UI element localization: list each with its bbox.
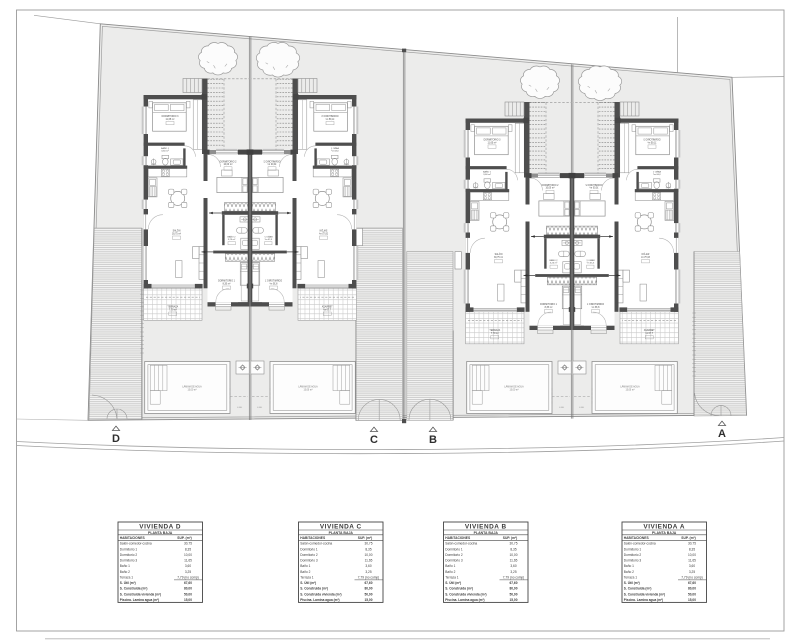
svg-text:Piscina. Lamina agua (m²): Piscina. Lamina agua (m²) [445, 598, 484, 602]
svg-text:15,00: 15,00 [510, 598, 518, 602]
svg-text:Terraza 1: Terraza 1 [120, 575, 134, 579]
svg-text:PLANTA BAJA: PLANTA BAJA [474, 531, 499, 535]
svg-text:80,00: 80,00 [365, 587, 373, 591]
svg-text:S. Construida (m²): S. Construida (m²) [300, 587, 328, 591]
svg-text:Dormitorio 2: Dormitorio 2 [300, 553, 318, 557]
svg-text:30,75: 30,75 [184, 542, 192, 546]
svg-text:67,60: 67,60 [688, 581, 696, 585]
svg-text:50,00: 50,00 [365, 592, 373, 596]
svg-text:HABITACIONES: HABITACIONES [120, 536, 146, 540]
svg-text:30,75: 30,75 [688, 542, 696, 546]
svg-text:S. Construida vivienda (m²): S. Construida vivienda (m²) [445, 592, 486, 596]
svg-text:80,00: 80,00 [688, 587, 696, 591]
svg-text:Baño 2: Baño 2 [624, 570, 634, 574]
svg-text:PLANTA BAJA: PLANTA BAJA [329, 531, 354, 535]
svg-text:3,60: 3,60 [689, 564, 695, 568]
svg-text:S. Útil (m²): S. Útil (m²) [300, 580, 316, 585]
svg-text:3,60: 3,60 [185, 564, 191, 568]
svg-text:BAÑO 1: BAÑO 1 [161, 147, 170, 150]
svg-text:67,60: 67,60 [365, 581, 373, 585]
svg-text:3,60: 3,60 [365, 564, 371, 568]
svg-text:Dormitorio 3: Dormitorio 3 [120, 559, 138, 563]
svg-text:3,25: 3,25 [510, 570, 516, 574]
svg-text:SUP. (m²): SUP. (m²) [358, 536, 372, 540]
svg-text:10,00: 10,00 [688, 553, 696, 557]
svg-text:Salón-comedor-cocina: Salón-comedor-cocina [624, 542, 656, 546]
svg-text:Baño 2: Baño 2 [445, 570, 455, 574]
svg-text:Dormitorio 3: Dormitorio 3 [300, 559, 318, 563]
svg-text:10,00: 10,00 [184, 553, 192, 557]
svg-text:Dormitorio 1: Dormitorio 1 [624, 547, 642, 551]
svg-text:Salón-comedor-cocina: Salón-comedor-cocina [445, 542, 477, 546]
svg-text:S. Construida vivienda (m²): S. Construida vivienda (m²) [624, 592, 665, 596]
svg-text:VIVIENDA C: VIVIENDA C [320, 523, 362, 530]
svg-text:Dormitorio 1: Dormitorio 1 [445, 547, 463, 551]
svg-text:D: D [112, 433, 120, 445]
svg-text:Dormitorio 1: Dormitorio 1 [120, 547, 138, 551]
svg-text:8,35: 8,35 [365, 547, 371, 551]
svg-text:Piscina. Lamina agua (m²): Piscina. Lamina agua (m²) [120, 598, 159, 602]
svg-text:VIVIENDA B: VIVIENDA B [465, 523, 507, 530]
svg-text:3,25: 3,25 [689, 570, 695, 574]
svg-text:30,75: 30,75 [510, 542, 518, 546]
svg-text:11,65: 11,65 [510, 559, 518, 563]
svg-text:TERRAZA: TERRAZA [167, 306, 178, 309]
svg-text:Dormitorio 2: Dormitorio 2 [120, 553, 138, 557]
svg-text:HABITACIONES: HABITACIONES [445, 536, 471, 540]
svg-text:Terraza 1: Terraza 1 [624, 575, 638, 579]
svg-text:S. Útil (m²): S. Útil (m²) [445, 580, 461, 585]
svg-text:7,79 (no comp): 7,79 (no comp) [358, 575, 379, 579]
svg-text:10,00 m²: 10,00 m² [223, 163, 232, 166]
svg-text:S. Construida vivienda (m²): S. Construida vivienda (m²) [120, 592, 161, 596]
svg-text:11,65: 11,65 [688, 559, 696, 563]
svg-text:3,60: 3,60 [510, 564, 516, 568]
svg-text:S. Construida vivienda (m²): S. Construida vivienda (m²) [300, 592, 341, 596]
svg-text:15,00: 15,00 [365, 598, 373, 602]
svg-text:Baño 1: Baño 1 [445, 564, 455, 568]
svg-text:Salón-comedor-cocina: Salón-comedor-cocina [120, 542, 152, 546]
svg-text:30,75: 30,75 [365, 542, 373, 546]
svg-text:Baño 1: Baño 1 [300, 564, 310, 568]
svg-text:HABITACIONES: HABITACIONES [624, 536, 650, 540]
svg-text:10,00: 10,00 [510, 553, 518, 557]
svg-text:DORMITORIO 1: DORMITORIO 1 [218, 281, 236, 283]
svg-text:SUP. (m²): SUP. (m²) [503, 536, 517, 540]
svg-text:C: C [370, 434, 378, 446]
svg-text:Terraza 1: Terraza 1 [445, 575, 459, 579]
svg-text:PLANTA BAJA: PLANTA BAJA [652, 531, 677, 535]
svg-text:S. Útil (m²): S. Útil (m²) [120, 580, 136, 585]
svg-text:HABITACIONES: HABITACIONES [300, 536, 326, 540]
svg-text:S. Construida (m²): S. Construida (m²) [624, 587, 652, 591]
svg-text:Baño 2: Baño 2 [120, 570, 130, 574]
svg-text:7,79 (no comp): 7,79 (no comp) [177, 575, 198, 579]
svg-text:VIVIENDA A: VIVIENDA A [643, 523, 685, 530]
svg-text:A: A [718, 428, 726, 440]
svg-text:S. Construida (m²): S. Construida (m²) [445, 587, 473, 591]
svg-text:SALÓN: SALÓN [173, 230, 181, 233]
svg-text:3,25: 3,25 [365, 570, 371, 574]
svg-text:Dormitorio 3: Dormitorio 3 [445, 559, 463, 563]
svg-text:Salón-comedor-cocina: Salón-comedor-cocina [300, 542, 332, 546]
svg-text:Baño 1: Baño 1 [120, 564, 130, 568]
svg-text:Baño 1: Baño 1 [624, 564, 634, 568]
svg-text:S. Útil (m²): S. Útil (m²) [624, 580, 640, 585]
svg-text:Dormitorio 1: Dormitorio 1 [300, 547, 318, 551]
svg-text:11,65 m²: 11,65 m² [166, 118, 175, 121]
svg-text:Terraza 1: Terraza 1 [300, 575, 314, 579]
svg-text:Piscina. Lamina agua (m²): Piscina. Lamina agua (m²) [624, 598, 663, 602]
svg-text:80,00: 80,00 [184, 587, 192, 591]
svg-text:Baño 2: Baño 2 [300, 570, 310, 574]
svg-text:50,00: 50,00 [688, 592, 696, 596]
svg-text:10,00: 10,00 [365, 553, 373, 557]
svg-text:7,79 (no comp): 7,79 (no comp) [681, 575, 702, 579]
svg-text:30,75 m²: 30,75 m² [172, 232, 181, 235]
svg-text:Dormitorio 2: Dormitorio 2 [624, 553, 642, 557]
svg-text:SUP. (m²): SUP. (m²) [177, 536, 191, 540]
svg-text:50,00: 50,00 [184, 592, 192, 596]
svg-text:PLANTA BAJA: PLANTA BAJA [148, 531, 173, 535]
svg-text:Piscina. Lamina agua (m²): Piscina. Lamina agua (m²) [300, 598, 339, 602]
svg-text:DORMITORIO 3: DORMITORIO 3 [162, 116, 180, 118]
svg-text:15,00: 15,00 [184, 598, 192, 602]
svg-text:11,65: 11,65 [365, 559, 373, 563]
svg-text:7,79 (no comp): 7,79 (no comp) [503, 575, 524, 579]
svg-text:3,25 m²: 3,25 m² [228, 238, 236, 241]
svg-text:VIVIENDA D: VIVIENDA D [139, 523, 181, 530]
svg-text:15,00: 15,00 [688, 598, 696, 602]
svg-text:8,35: 8,35 [510, 547, 516, 551]
svg-text:8,35: 8,35 [185, 547, 191, 551]
svg-text:50,00: 50,00 [510, 592, 518, 596]
svg-text:3,25: 3,25 [185, 570, 191, 574]
svg-text:SUP. (m²): SUP. (m²) [681, 536, 695, 540]
svg-text:S. Construida (m²): S. Construida (m²) [120, 587, 148, 591]
svg-text:7,79 m²: 7,79 m² [169, 308, 177, 311]
svg-text:67,60: 67,60 [510, 581, 518, 585]
svg-text:DORMITORIO 2: DORMITORIO 2 [220, 161, 238, 163]
svg-text:8,35: 8,35 [689, 547, 695, 551]
svg-text:Dormitorio 3: Dormitorio 3 [624, 559, 642, 563]
svg-text:8,35 m²: 8,35 m² [223, 282, 231, 285]
svg-text:3,60 m²: 3,60 m² [161, 150, 169, 153]
svg-text:80,00: 80,00 [510, 587, 518, 591]
svg-text:BAÑO 2: BAÑO 2 [227, 236, 236, 239]
svg-text:67,60: 67,60 [184, 581, 192, 585]
svg-text:Dormitorio 2: Dormitorio 2 [445, 553, 463, 557]
svg-text:11,65: 11,65 [184, 559, 192, 563]
svg-text:B: B [429, 434, 437, 446]
